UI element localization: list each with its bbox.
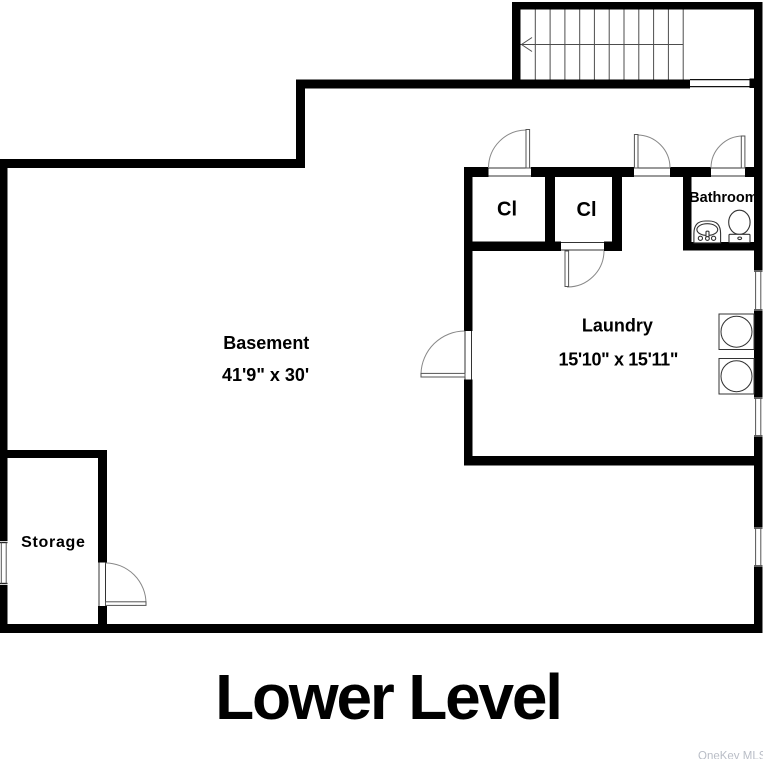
svg-text:Cl: Cl — [577, 199, 597, 221]
svg-text:Bathroom: Bathroom — [689, 190, 757, 206]
svg-text:15'10" x 15'11": 15'10" x 15'11" — [559, 350, 679, 370]
svg-text:Lower Level: Lower Level — [215, 661, 561, 733]
svg-text:Storage: Storage — [21, 534, 85, 551]
svg-text:OneKey MLS: OneKey MLS — [698, 750, 763, 759]
svg-text:Cl: Cl — [497, 199, 517, 221]
svg-text:Basement: Basement — [223, 333, 309, 353]
svg-text:Laundry: Laundry — [582, 316, 653, 336]
svg-text:41'9" x 30': 41'9" x 30' — [222, 365, 309, 385]
